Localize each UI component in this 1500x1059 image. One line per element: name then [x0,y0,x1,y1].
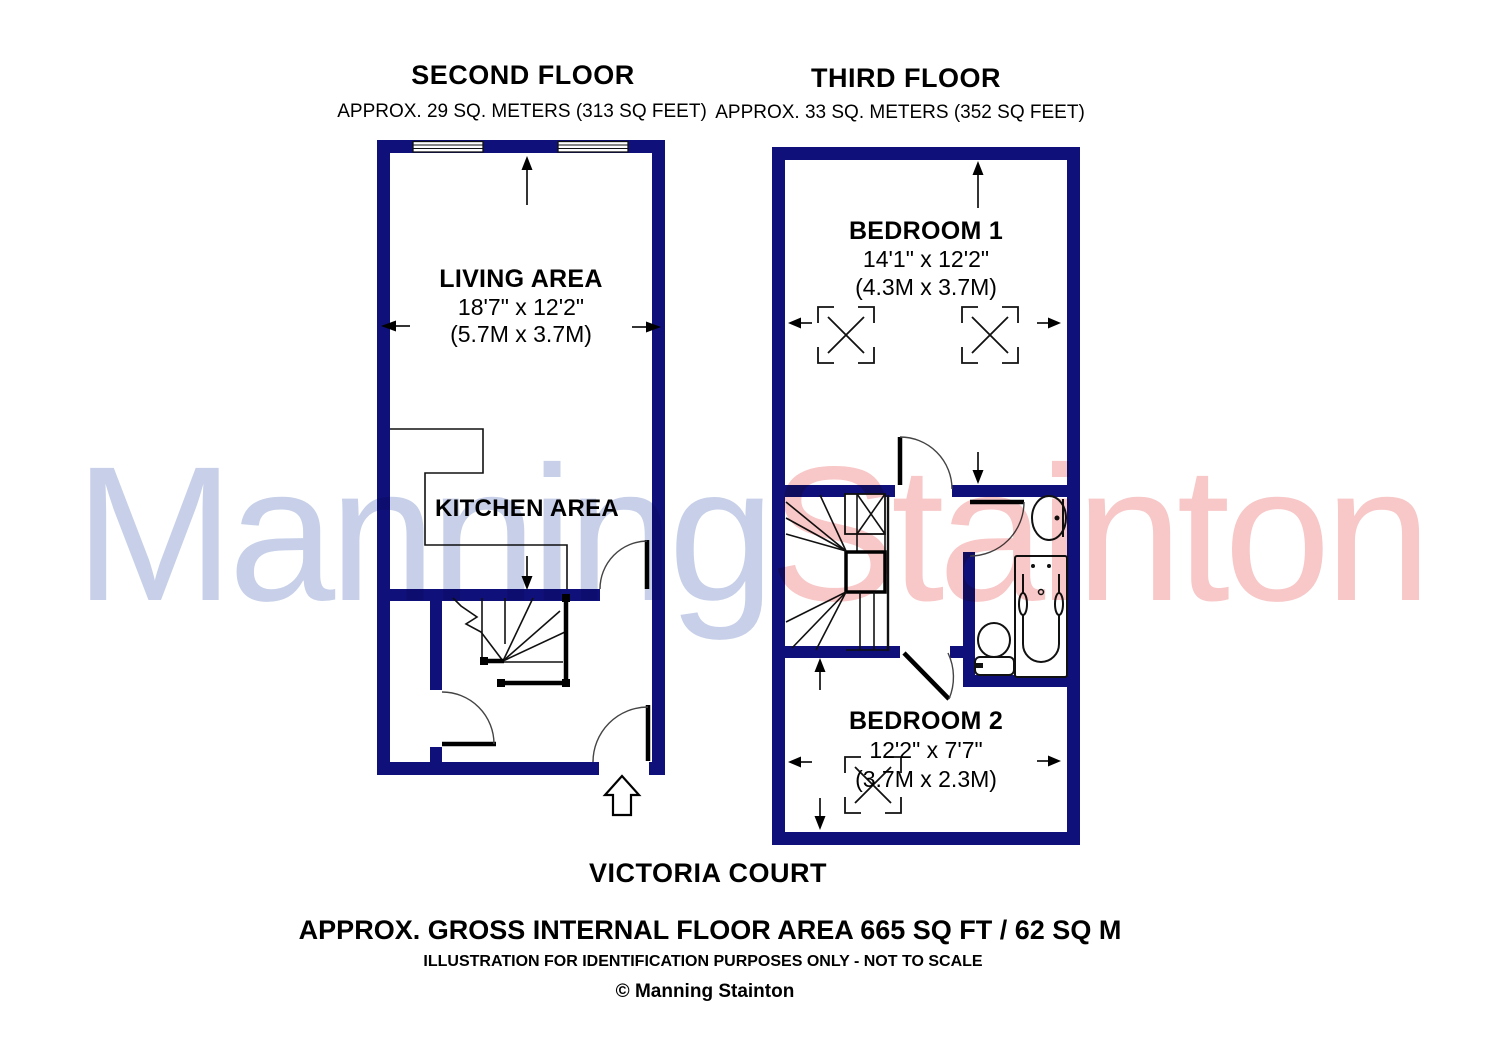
bedroom2-label: BEDROOM 2 [849,707,1003,736]
direction-arrow [973,452,984,484]
bedroom1-dims-imperial: 14'1" x 12'2" [863,246,989,272]
living-area-label: LIVING AREA [439,265,603,294]
copyright-line: © Manning Stainton [616,981,795,1003]
landing-door-arc [900,437,952,489]
dimension-arrow [788,757,812,768]
second-floor-walls [377,140,665,775]
gross-area-line: APPROX. GROSS INTERNAL FLOOR AREA 665 SQ… [299,915,1122,946]
floorplan-page: SECOND FLOOR APPROX. 29 SQ. METERS (313 … [0,0,1500,1059]
bedroom1-label: BEDROOM 1 [849,217,1003,246]
toilet-icon [975,623,1014,675]
sink-icon [1032,496,1066,540]
second-floor-plan [377,140,665,815]
staircase-third-floor [786,494,888,651]
direction-arrow [522,556,533,590]
disclaimer-line: ILLUSTRATION FOR IDENTIFICATION PURPOSES… [423,953,982,971]
direction-arrow [815,658,826,690]
bathtub-icon [1015,556,1067,677]
property-name: VICTORIA COURT [589,858,827,889]
kitchen-door-arc [600,540,647,589]
window-icon [558,142,628,153]
second-floor-subtitle: APPROX. 29 SQ. METERS (313 SQ FEET) [337,101,707,123]
entrance-arrow-icon [605,776,639,815]
bedroom2-dims-metric: (3.7M x 2.3M) [855,766,997,792]
staircase-second-floor [453,594,570,687]
window-icon [413,142,483,153]
direction-arrow [815,798,826,830]
direction-arrow [522,156,533,205]
bedroom2-dims-imperial: 12'2" x 7'7" [869,737,982,763]
third-floor-title: THIRD FLOOR [811,63,1001,94]
bedroom1-dims-metric: (4.3M x 3.7M) [855,274,997,300]
entrance-door-arc [593,705,648,762]
dimension-arrow [1037,756,1061,767]
direction-arrow [973,161,984,208]
dimension-arrow [1037,318,1061,329]
skylight-icon [818,307,874,363]
third-floor-subtitle: APPROX. 33 SQ. METERS (352 SQ FEET) [715,102,1085,124]
hall-door-arc [442,692,496,744]
living-area-dims-metric: (5.7M x 3.7M) [450,321,592,347]
second-floor-title: SECOND FLOOR [411,60,635,91]
dimension-arrow [788,318,812,329]
living-area-dims-imperial: 18'7" x 12'2" [458,294,584,320]
bathroom-door-arc [970,502,1024,556]
floorplan-graphic [0,0,1500,1059]
kitchen-area-label: KITCHEN AREA [435,495,619,523]
skylight-icon [962,307,1018,363]
bedroom2-door-arc [904,653,953,699]
